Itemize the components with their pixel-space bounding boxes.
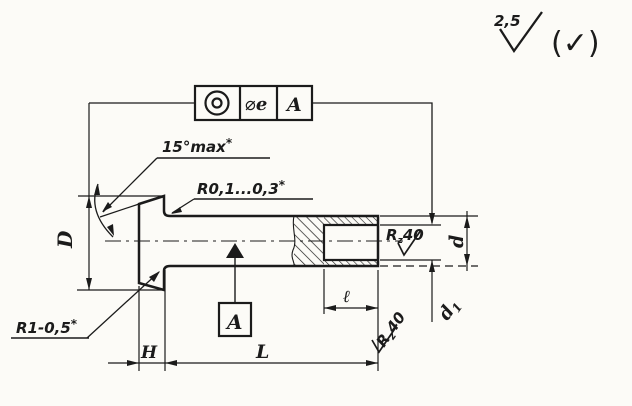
rivet-drawing-svg: ⌀e A: [0, 0, 632, 406]
hole-roughness-value: Rz40: [386, 226, 424, 246]
cone-angle-note: 15°max*: [162, 136, 233, 156]
general-roughness-value: 2,5: [494, 12, 521, 30]
engineering-drawing-canvas: ⌀e A: [0, 0, 632, 406]
tolerance-datum-ref: A: [285, 94, 302, 116]
alternate-roughness-mark: (✓): [551, 26, 600, 61]
dim-shank-diameter: d: [446, 235, 468, 248]
dim-total-length: L: [255, 341, 269, 363]
dim-head-height: H: [140, 343, 158, 363]
tolerance-value: ⌀e: [245, 94, 267, 115]
dim-head-diameter: D: [53, 230, 77, 249]
datum-label: A: [225, 310, 243, 334]
fillet-radius-note: R0,1...0,3*: [197, 178, 286, 198]
head-fillet-note: R1-0,5*: [16, 317, 78, 337]
dim-hole-depth: ℓ: [343, 287, 350, 307]
